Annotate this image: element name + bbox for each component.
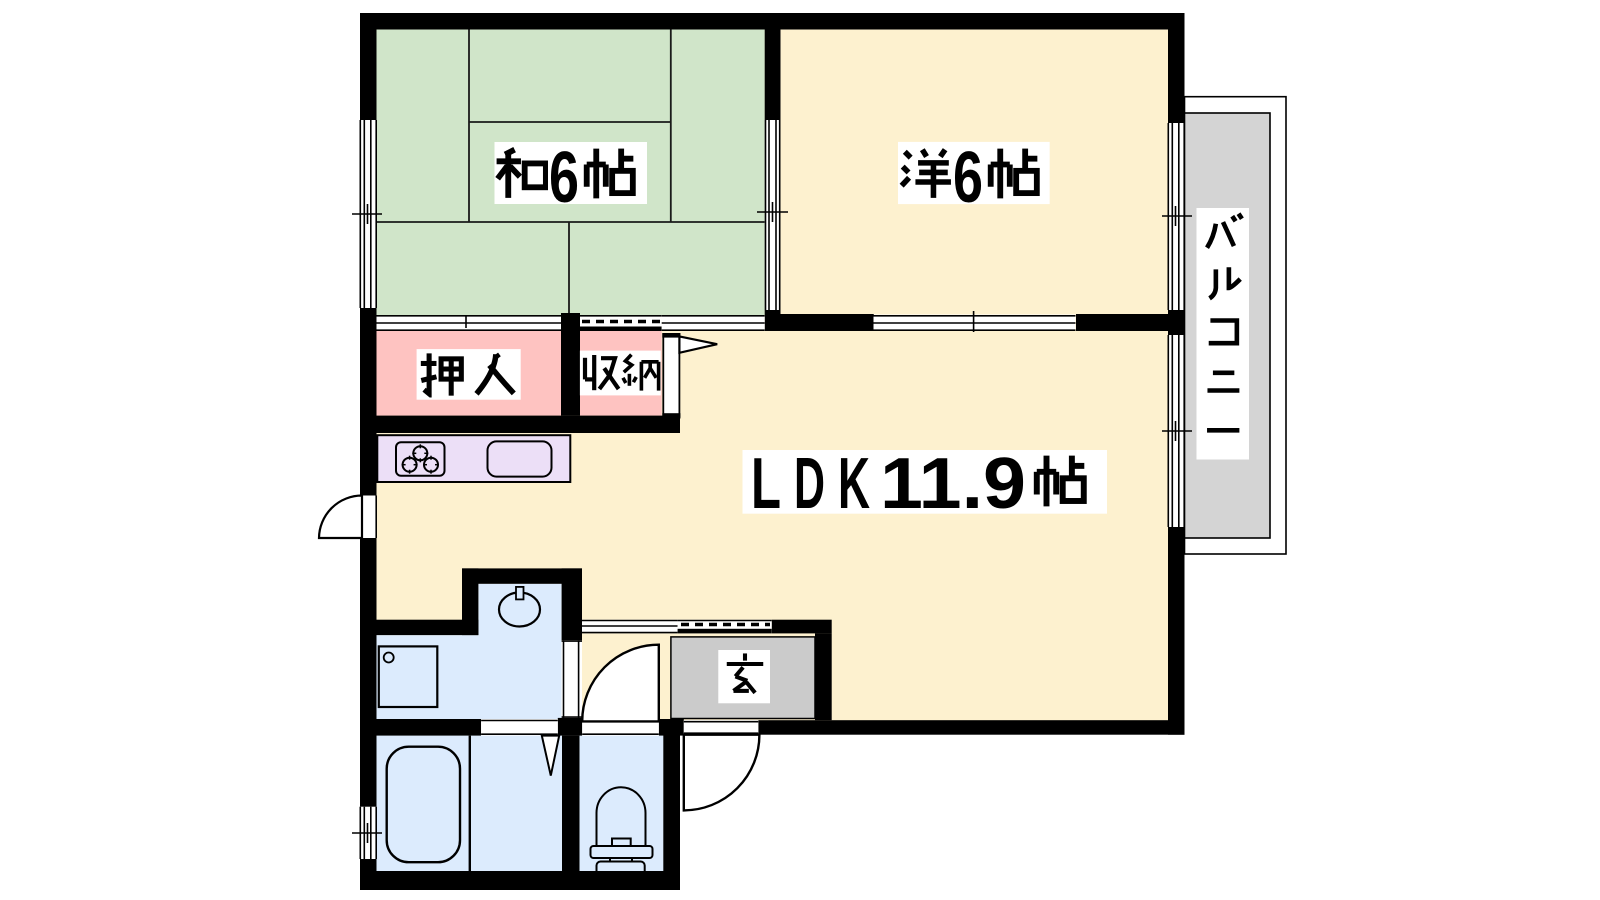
svg-text:K: K [838,444,870,524]
svg-text:D: D [794,444,825,524]
svg-text:L: L [751,444,781,524]
svg-text:11.9: 11.9 [880,444,1026,524]
svg-text:6: 6 [549,138,579,218]
svg-text:6: 6 [953,138,983,218]
